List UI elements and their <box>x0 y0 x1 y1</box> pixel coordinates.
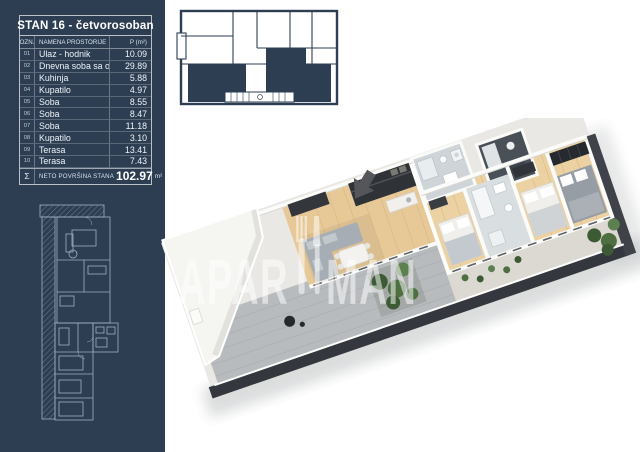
row-area: 7.43 <box>109 156 151 167</box>
sum-value: 102.97 <box>114 169 153 183</box>
table-row: 04 Kupatilo 4.97 <box>20 85 151 97</box>
table-row: 06 Soba 8.47 <box>20 108 151 120</box>
floor-key-plan <box>176 8 340 108</box>
row-area: 11.18 <box>109 120 151 131</box>
table-row: 02 Dnevna soba sa obed. 29.89 <box>20 61 151 73</box>
apartment-sheet: STAN 16 - četvorosoban OZN. NAMENA PROST… <box>0 0 640 452</box>
row-name: Dnevna soba sa obed. <box>35 61 109 71</box>
table-row: 08 Kupatilo 3.10 <box>20 132 151 144</box>
row-name: Soba <box>35 97 109 107</box>
header-area: P (m²) <box>109 36 151 48</box>
row-ozn: 07 <box>20 120 35 131</box>
row-area: 3.10 <box>109 132 151 143</box>
table-sum-row: Σ NETO POVRŠINA STANA 102.97 m² <box>20 168 151 184</box>
table-row: 01 Ulaz - hodnik 10.09 <box>20 49 151 61</box>
row-name: Terasa <box>35 145 109 155</box>
unit-blueprint-2d <box>28 196 134 448</box>
header-name: NAMENA PROSTORIJE <box>35 39 109 46</box>
table-row: 09 Terasa 13.41 <box>20 144 151 156</box>
row-name: Soba <box>35 121 109 131</box>
row-name: Ulaz - hodnik <box>35 49 109 59</box>
info-panel: STAN 16 - četvorosoban OZN. NAMENA PROST… <box>0 0 165 452</box>
row-ozn: 01 <box>20 49 35 60</box>
sum-symbol: Σ <box>20 169 35 184</box>
row-area: 8.55 <box>109 97 151 108</box>
row-ozn: 06 <box>20 108 35 119</box>
stair-core <box>225 92 294 102</box>
row-ozn: 04 <box>20 85 35 96</box>
row-ozn: 08 <box>20 132 35 143</box>
row-ozn: 05 <box>20 97 35 108</box>
row-area: 4.97 <box>109 85 151 96</box>
area-table-rows: 01 Ulaz - hodnik 10.09 02 Dnevna soba sa… <box>20 49 151 168</box>
row-ozn: 09 <box>20 144 35 155</box>
row-name: Terasa <box>35 156 109 166</box>
area-table: STAN 16 - četvorosoban OZN. NAMENA PROST… <box>19 15 152 185</box>
table-row: 10 Terasa 7.43 <box>20 156 151 168</box>
page-title: STAN 16 - četvorosoban <box>20 16 151 36</box>
row-name: Kuhinja <box>35 73 109 83</box>
header-ozn: OZN. <box>20 36 35 48</box>
sum-label: NETO POVRŠINA STANA <box>35 173 114 180</box>
row-name: Kupatilo <box>35 133 109 143</box>
table-row: 07 Soba 11.18 <box>20 120 151 132</box>
table-row: 05 Soba 8.55 <box>20 97 151 109</box>
row-area: 13.41 <box>109 144 151 155</box>
row-area: 5.88 <box>109 73 151 84</box>
row-ozn: 02 <box>20 61 35 72</box>
row-area: 29.89 <box>109 61 151 72</box>
row-name: Soba <box>35 109 109 119</box>
row-ozn: 03 <box>20 73 35 84</box>
render-3d <box>160 118 640 452</box>
row-ozn: 10 <box>20 156 35 167</box>
table-row: 03 Kuhinja 5.88 <box>20 73 151 85</box>
table-header: OZN. NAMENA PROSTORIJE P (m²) <box>20 36 151 49</box>
row-name: Kupatilo <box>35 85 109 95</box>
render-building <box>160 118 636 399</box>
row-area: 8.47 <box>109 108 151 119</box>
row-area: 10.09 <box>109 49 151 60</box>
